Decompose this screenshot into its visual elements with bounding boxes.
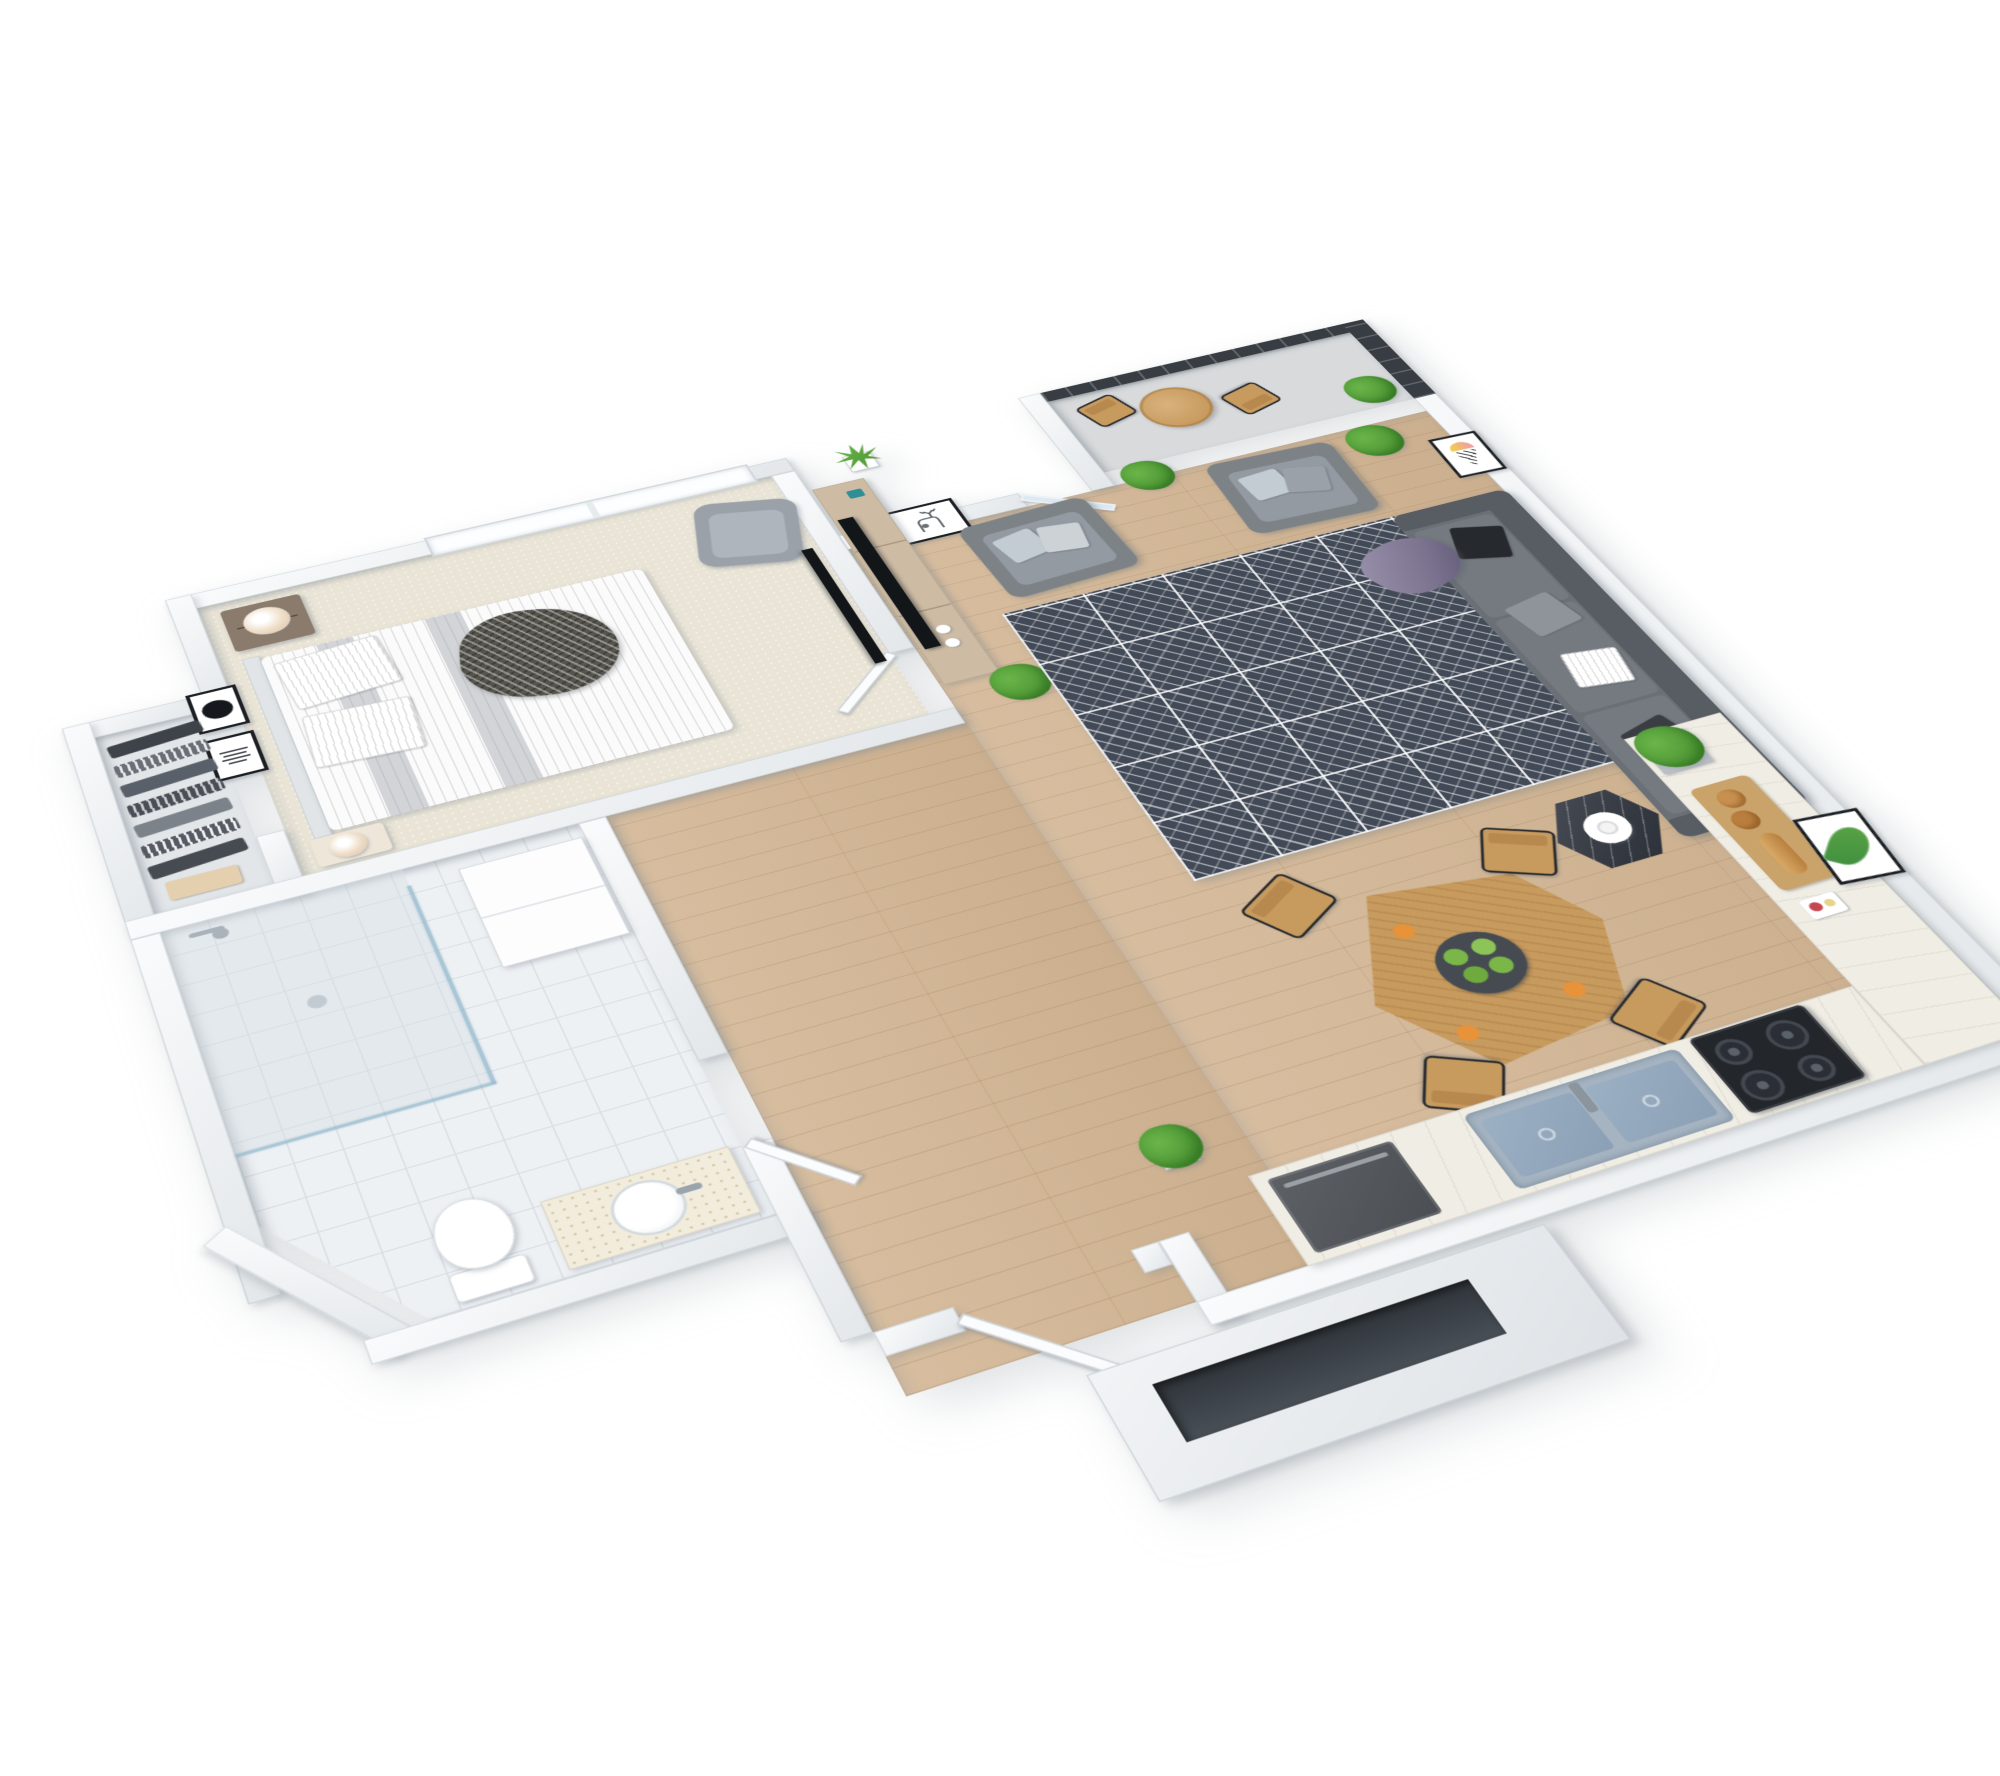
stove-burner	[1790, 1051, 1843, 1085]
baguette	[1754, 830, 1812, 876]
stove-burner	[1732, 1065, 1793, 1105]
ice-cream-cone	[1453, 448, 1489, 468]
page: { "scene": { "title": "3D isometric floo…	[0, 0, 2000, 1700]
wingback-seat	[708, 509, 790, 559]
wingback-armchair	[693, 497, 805, 568]
shower-drain	[305, 993, 329, 1011]
snack-food	[1806, 901, 1825, 913]
window-mullion	[585, 501, 601, 518]
stove-burner	[1757, 1016, 1817, 1055]
deer-art-motif	[898, 506, 956, 537]
lime	[1484, 954, 1518, 976]
sink-drain	[1639, 1093, 1663, 1109]
bread	[1711, 787, 1751, 811]
monstera-leaf	[1823, 823, 1875, 869]
lime	[1459, 964, 1494, 986]
sink-drain	[1535, 1126, 1559, 1143]
moon-art-motif	[199, 697, 236, 721]
armchair-pillow	[1281, 466, 1332, 493]
stove-burner	[1708, 1035, 1760, 1069]
lime	[1439, 946, 1473, 968]
scene	[0, 0, 2000, 1700]
dining-chair	[1480, 827, 1558, 876]
snack-food	[1822, 898, 1837, 907]
cabinet-door-line	[481, 885, 605, 920]
apartment-plan	[28, 315, 2000, 1695]
sofa-pillow	[1449, 526, 1514, 560]
bread	[1725, 808, 1766, 832]
chair-back	[1488, 833, 1548, 847]
lime	[1467, 936, 1501, 958]
